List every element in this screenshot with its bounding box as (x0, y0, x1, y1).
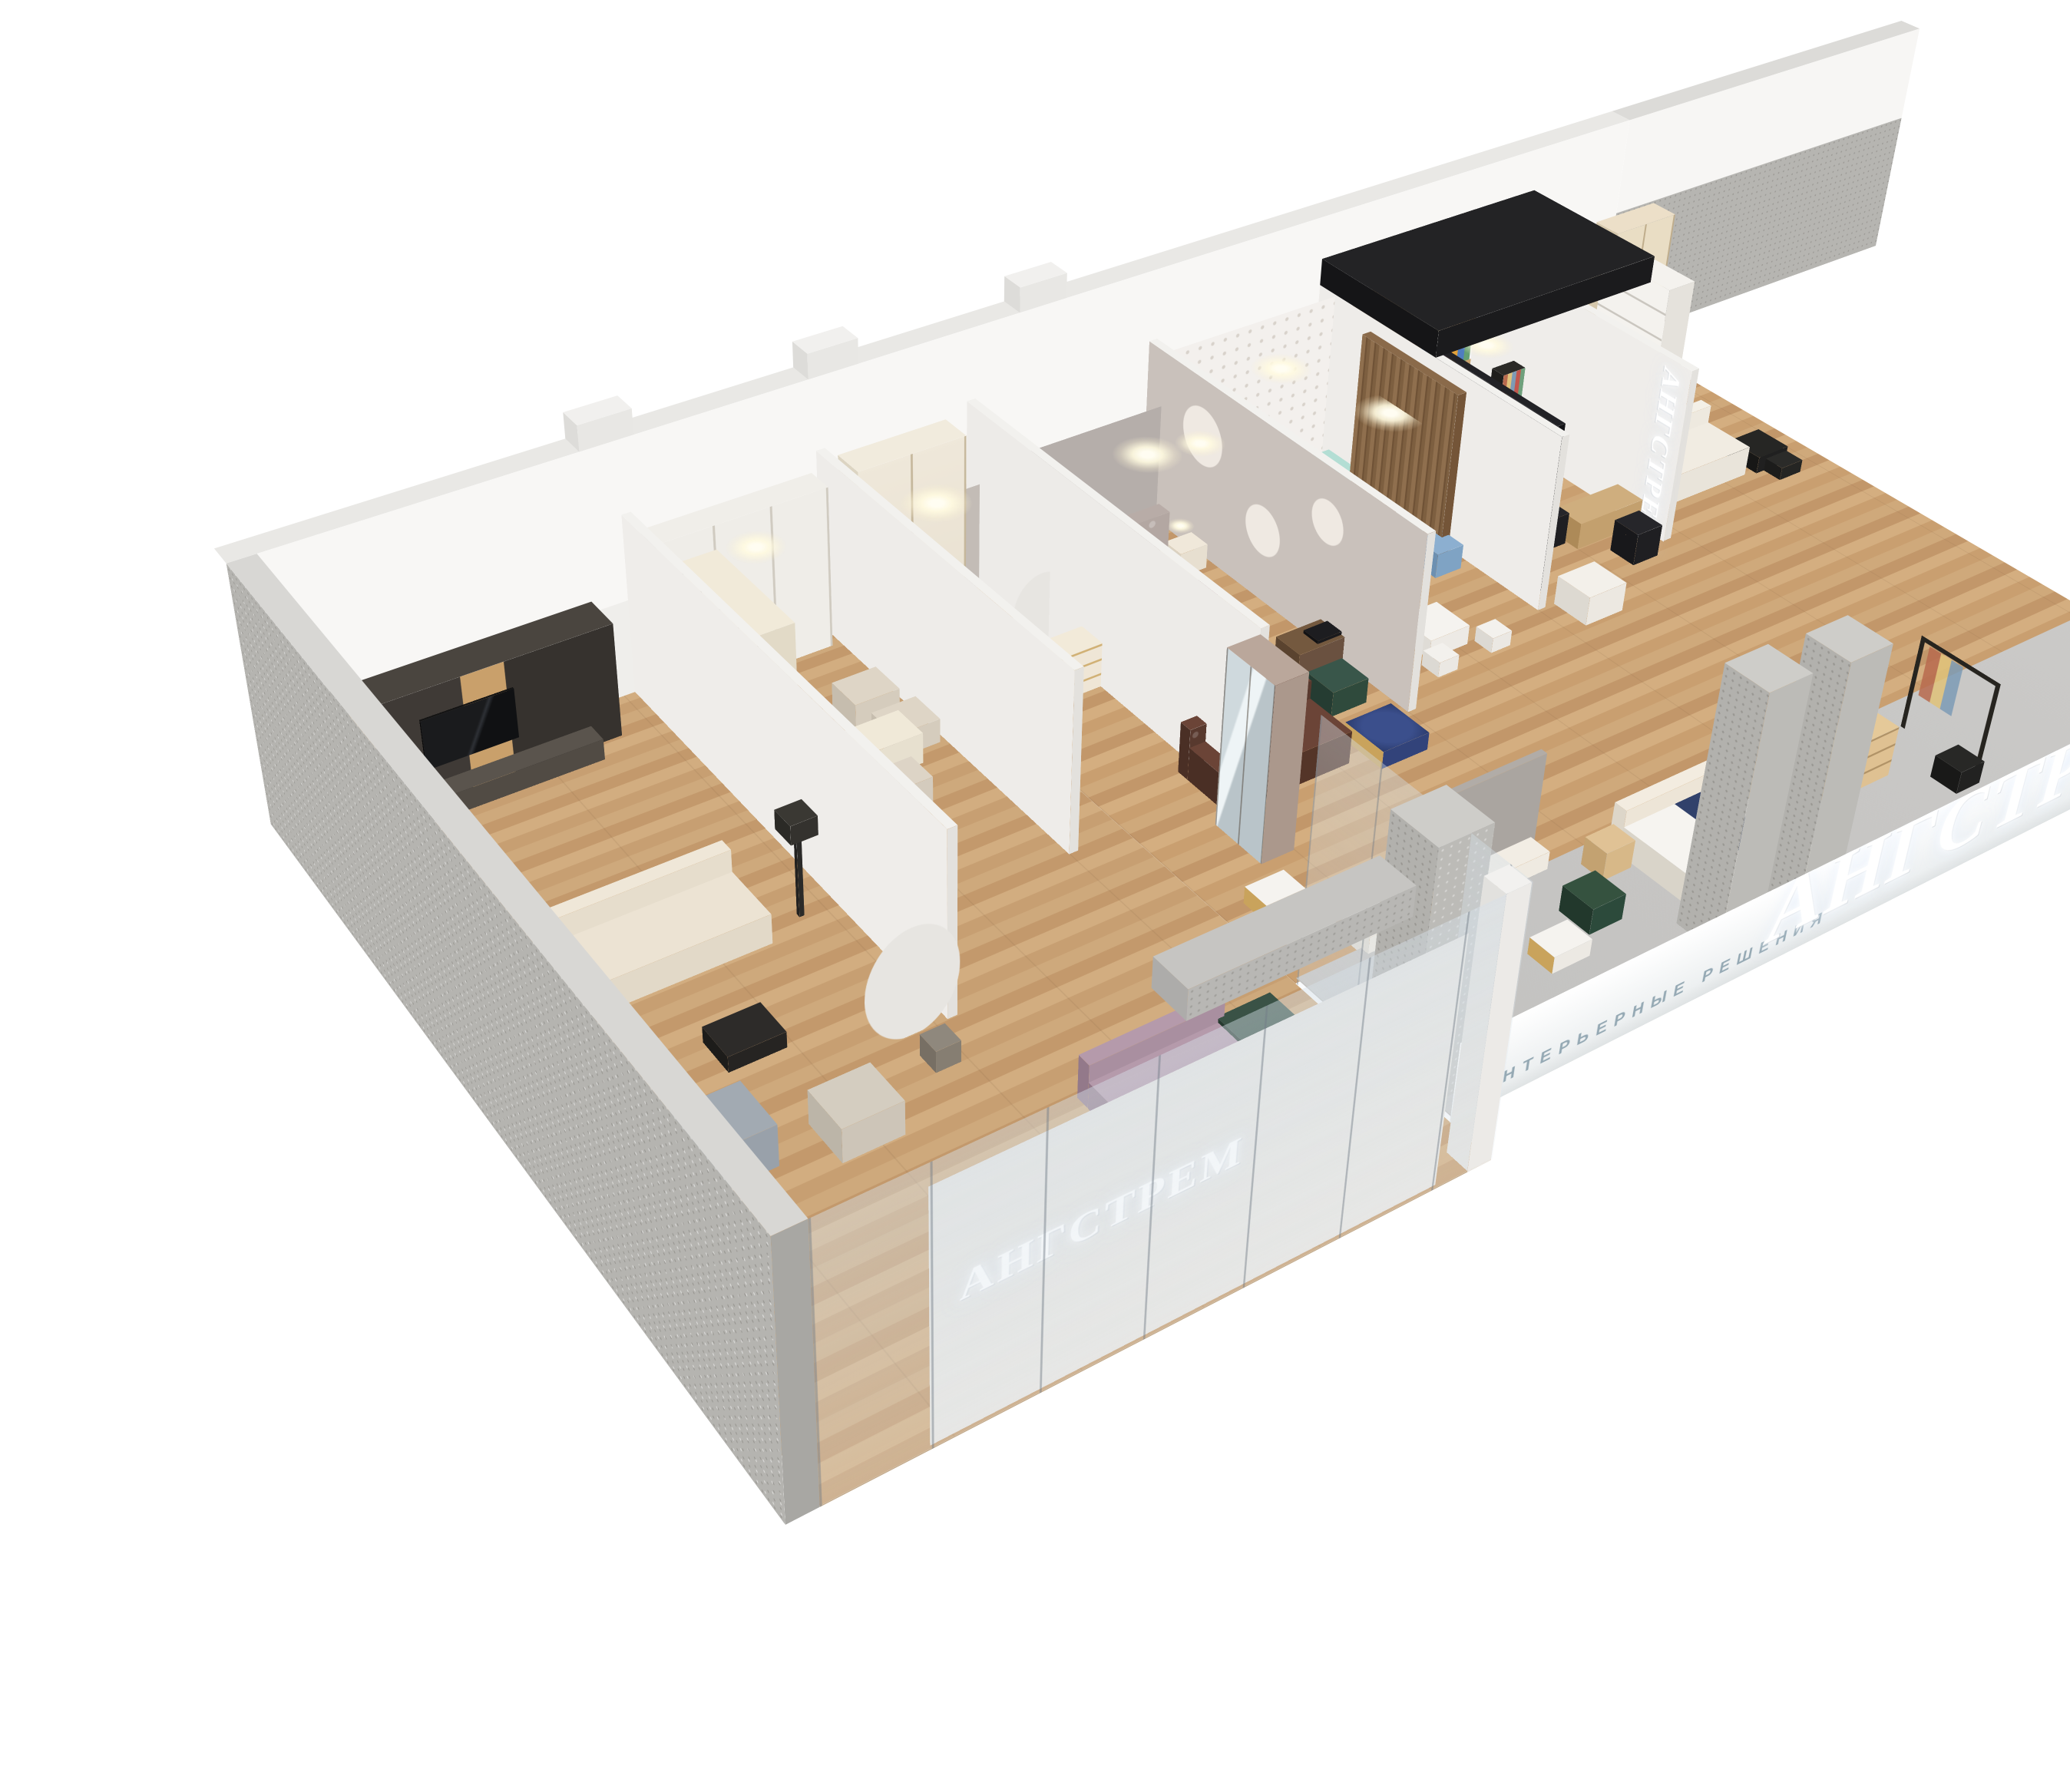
render-canvas: АНГСТРЕМ ИНТЕРЬЕРНЫЕ РЕШЕНИЯ АНГСТРЕМ ИН… (0, 0, 2070, 1792)
